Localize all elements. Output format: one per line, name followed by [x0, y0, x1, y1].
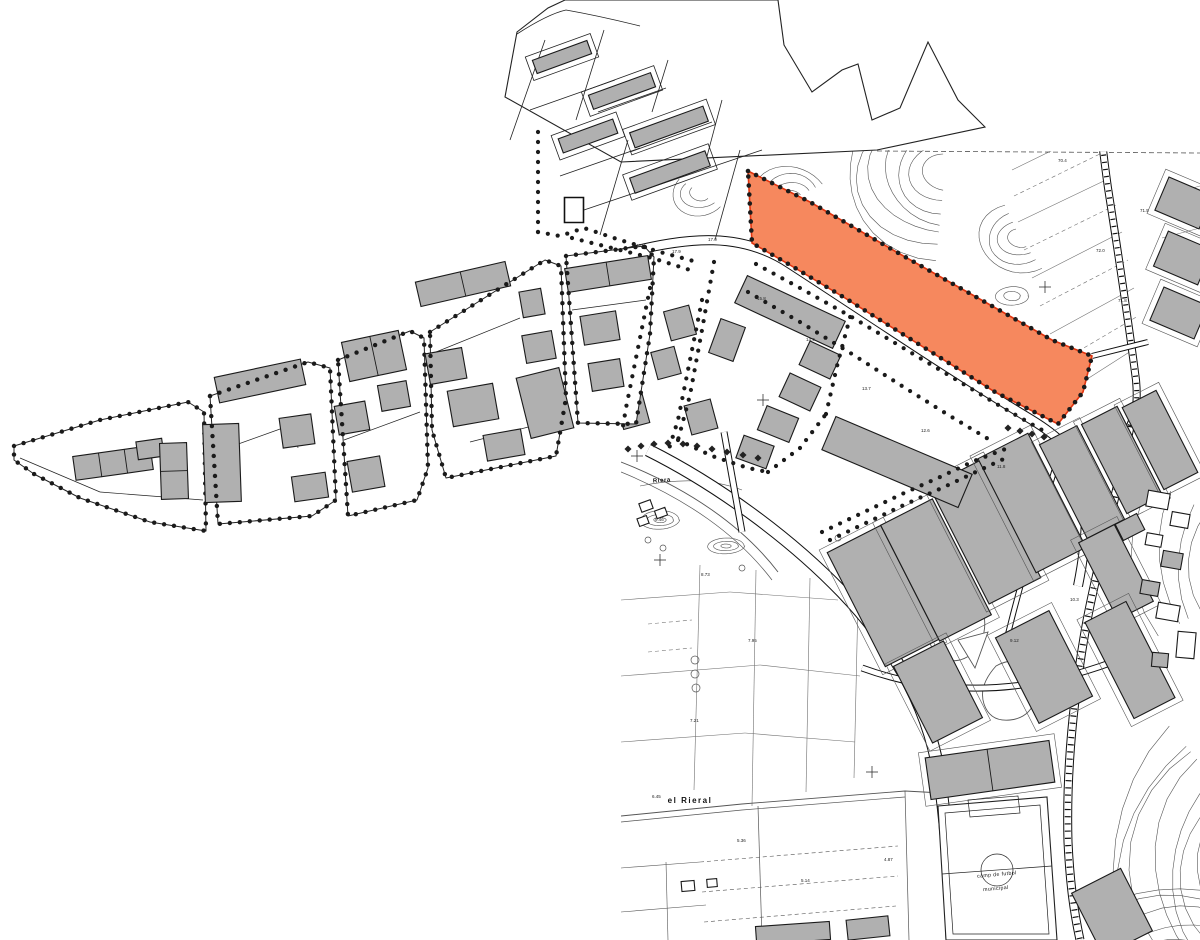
boundary-dot [354, 512, 358, 516]
boundary-dot [676, 416, 680, 420]
boundary-dot [833, 215, 838, 220]
contour-line [1189, 512, 1200, 612]
boundary-dot [943, 277, 948, 282]
boundary-dot [428, 354, 432, 358]
building-footprint [279, 414, 315, 448]
parcel-line [1032, 232, 1122, 278]
parcel-line [1018, 178, 1110, 222]
tree-icon [624, 445, 631, 452]
boundary-dot [928, 491, 932, 495]
parcel-line [1024, 205, 1116, 250]
building-footprint [1156, 602, 1180, 622]
boundary-dot [333, 489, 337, 493]
boundary-dot [521, 271, 525, 275]
boundary-dot [536, 160, 540, 164]
boundary-dot [640, 325, 644, 329]
building-footprint [347, 456, 385, 492]
boundary-dot [670, 253, 674, 257]
boundary-dot [640, 381, 644, 385]
boundary-dot [865, 233, 870, 238]
boundary-dot [970, 387, 974, 391]
boundary-dot [824, 300, 828, 304]
boundary-dot [1008, 398, 1013, 403]
boundary-dot [866, 362, 870, 366]
boundary-dot [554, 450, 558, 454]
boundary-dot [332, 459, 336, 463]
boundary-dot [589, 241, 593, 245]
topo-path [700, 846, 898, 862]
boundary-dot [585, 421, 589, 425]
boundary-dot [748, 201, 753, 206]
boundary-dot [651, 271, 655, 275]
parcel-line [1012, 128, 1098, 170]
boundary-dot [513, 277, 517, 281]
boundary-dot [900, 384, 904, 388]
parcel-line [806, 578, 810, 792]
boundary-dot [423, 373, 427, 377]
boundary-dot [982, 466, 986, 470]
boundary-dot [985, 385, 990, 390]
boundary-dot [962, 382, 966, 386]
boundary-dot [575, 411, 579, 415]
boundary-dot [339, 402, 343, 406]
boundary-dot [114, 508, 118, 512]
boundary-dot [423, 383, 427, 387]
boundary-dot [98, 418, 102, 422]
boundary-dot [21, 441, 25, 445]
boundary-dot [826, 210, 831, 215]
spot-elevation: 9.46 [655, 517, 664, 522]
boundary-dot [297, 515, 301, 519]
boundary-dot [651, 248, 655, 252]
spot-elevation: 11.8 [997, 464, 1006, 469]
boundary-dot [561, 311, 565, 315]
boundary-dot [248, 519, 252, 523]
boundary-dot [698, 308, 702, 312]
boundary-dot [420, 482, 424, 486]
tree-symbol [739, 565, 745, 571]
boundary-dot [613, 247, 617, 251]
contour-line [1008, 229, 1027, 247]
building-footprint [736, 435, 774, 468]
boundary-dot [536, 170, 540, 174]
boundary-dot [564, 261, 568, 265]
tree-symbol [660, 545, 666, 551]
boundary-dot [123, 511, 127, 515]
boundary-dot [845, 325, 849, 329]
boundary-dot [676, 438, 680, 442]
boundary-dot [937, 487, 941, 491]
boundary-dot [137, 410, 141, 414]
boundary-dot [707, 289, 711, 293]
topo-path [666, 862, 668, 940]
boundary-dot [571, 361, 575, 365]
building-footprint [291, 472, 328, 501]
boundary-dot [700, 329, 704, 333]
boundary-dot [496, 287, 500, 291]
boundary-dot [436, 324, 440, 328]
boundary-dot [560, 291, 564, 295]
boundary-dot [562, 341, 566, 345]
boundary-dot [561, 411, 565, 415]
boundary-dot [428, 344, 432, 348]
boundary-dot [872, 237, 877, 242]
boundary-dot [1037, 330, 1042, 335]
boundary-dot [831, 383, 835, 387]
boundary-dot [428, 330, 432, 334]
boundary-dot [650, 291, 654, 295]
topo-path [621, 472, 772, 580]
building-footprint [779, 373, 821, 411]
boundary-dot [958, 286, 963, 291]
boundary-dot [908, 389, 912, 393]
boundary-dot [192, 527, 196, 531]
boundary-dot [443, 472, 447, 476]
boundary-dot [419, 334, 423, 338]
boundary-dot [536, 210, 540, 214]
building-footprint [1155, 177, 1200, 229]
boundary-dot [570, 236, 574, 240]
boundary-dot [929, 479, 933, 483]
boundary-dot [818, 206, 823, 211]
contour-line [714, 541, 739, 550]
boundary-dot [747, 183, 752, 188]
boundary-dot [651, 261, 655, 265]
building-footprint [1161, 550, 1183, 569]
boundary-dot [919, 356, 923, 360]
boundary-dot [965, 462, 969, 466]
boundary-dot [108, 416, 112, 420]
boundary-dot [632, 242, 636, 246]
boundary-dot [778, 185, 783, 190]
boundary-dot [628, 384, 632, 388]
boundary-dot [1088, 359, 1093, 364]
boundary-dot [565, 231, 569, 235]
boundary-dot [953, 377, 957, 381]
block-3 [334, 330, 430, 517]
boundary-dot [1084, 376, 1089, 381]
boundary-dot [793, 266, 798, 271]
boundary-dot [708, 280, 712, 284]
boundary-dot [462, 309, 466, 313]
street-grid-plan [505, 0, 985, 240]
boundary-dot [218, 522, 222, 526]
boundary-dot [429, 384, 433, 388]
boundary-dot [412, 498, 416, 502]
building-footprint [580, 311, 620, 345]
spot-elevation: 71.8 [1118, 298, 1127, 303]
boundary-dot [1021, 321, 1026, 326]
boundary-dot [863, 308, 868, 313]
spot-elevation: 5.14 [801, 878, 810, 883]
survey-cross-icon [866, 766, 878, 778]
boundary-dot [563, 371, 567, 375]
contour-line [1180, 793, 1200, 940]
boundary-dot [901, 491, 905, 495]
boundary-dot [228, 521, 232, 525]
building-footprint [588, 359, 624, 392]
boundary-dot [594, 250, 598, 254]
boundary-dot [255, 377, 259, 381]
boundary-dot [330, 409, 334, 413]
boundary-dot [208, 404, 212, 408]
boundary-dot [1082, 385, 1087, 390]
boundary-dot [876, 331, 880, 335]
boundary-dot [338, 392, 342, 396]
boundary-dot [946, 483, 950, 487]
boundary-dot [346, 512, 350, 516]
boundary-dot [855, 525, 859, 529]
boundary-dot [569, 321, 573, 325]
boundary-dot [747, 192, 752, 197]
boundary-dot [277, 517, 281, 521]
boundary-dot [809, 275, 814, 280]
contour-line [909, 143, 942, 200]
parcel-line [621, 592, 730, 600]
boundary-dot [86, 498, 90, 502]
boundary-dot [790, 452, 794, 456]
boundary-dot [993, 451, 997, 455]
parcel-line [854, 600, 858, 778]
boundary-dot [152, 520, 156, 524]
boundary-dot [849, 224, 854, 229]
boundary-dot [843, 334, 847, 338]
block-4 [415, 259, 573, 479]
boundary-dot [893, 327, 898, 332]
boundary-dot [430, 424, 434, 428]
boundary-dot [566, 291, 570, 295]
boundary-dot [167, 404, 171, 408]
boundary-dot [1024, 406, 1029, 411]
boundary-dot [564, 254, 568, 258]
boundary-dot [636, 345, 640, 349]
boundary-dot [956, 466, 960, 470]
contour-line [690, 188, 708, 201]
boundary-dot [580, 238, 584, 242]
survey-cross-icon [654, 554, 666, 566]
boundary-dot [215, 514, 219, 518]
boundary-dot [204, 521, 208, 525]
boundary-dot [562, 361, 566, 365]
boundary-dot [547, 259, 551, 263]
boundary-dot [916, 342, 921, 347]
boundary-dot [339, 412, 343, 416]
boundary-dot [428, 364, 432, 368]
contour-line [673, 179, 720, 216]
boundary-dot [703, 451, 707, 455]
boundary-dot [660, 251, 664, 255]
boundary-dot [342, 452, 346, 456]
boundary-dot [1002, 447, 1006, 451]
boundary-dot [393, 503, 397, 507]
boundary-dot [1053, 339, 1058, 344]
boundary-dot [574, 391, 578, 395]
boundary-dot [195, 405, 199, 409]
boundary-dot [603, 249, 607, 253]
boundary-dot [985, 436, 989, 440]
contour-line [1004, 291, 1021, 300]
boundary-dot [650, 281, 654, 285]
boundary-dot [824, 412, 828, 416]
boundary-dot [628, 250, 632, 254]
boundary-dot [680, 396, 684, 400]
boundary-dot [766, 470, 770, 474]
boundary-dot [634, 420, 638, 424]
spot-elevation: 9.12 [1010, 638, 1019, 643]
boundary-dot [559, 271, 563, 275]
boundary-dot [162, 522, 166, 526]
boundary-dot [536, 150, 540, 154]
boundary-dot [778, 257, 783, 262]
topo-path [877, 151, 1200, 153]
boundary-dot [76, 495, 80, 499]
boundary-dot [841, 310, 845, 314]
boundary-dot [750, 467, 754, 471]
boundary-dot [615, 421, 619, 425]
topo-path [621, 905, 706, 912]
boundary-dot [626, 394, 630, 398]
boundary-dot [781, 310, 785, 314]
parcel-line [752, 570, 756, 806]
spot-elevation: 6.45 [652, 794, 661, 799]
boundary-dot [990, 304, 995, 309]
boundary-dot [832, 289, 837, 294]
boundary-dot [838, 353, 842, 357]
survey-cross-icon [631, 450, 643, 462]
boundary-dot [925, 400, 929, 404]
boundary-dot [689, 258, 693, 262]
building-footprint [681, 880, 695, 891]
boundary-dot [95, 502, 99, 506]
boundary-dot [642, 371, 646, 375]
boundary-dot [833, 373, 837, 377]
boundary-dot [331, 439, 335, 443]
tree-symbol [692, 684, 700, 692]
boundary-dot [321, 364, 325, 368]
boundary-dot [382, 339, 386, 343]
boundary-dot [246, 381, 250, 385]
boundary-dot [32, 472, 36, 476]
boundary-dot [186, 400, 190, 404]
boundary-dot [536, 190, 540, 194]
boundary-dot [694, 358, 698, 362]
boundary-dot [754, 173, 759, 178]
boundary-dot [429, 394, 433, 398]
boundary-dot [964, 475, 968, 479]
boundary-dot [559, 281, 563, 285]
boundary-dot [328, 369, 332, 373]
boundary-dot [641, 245, 645, 249]
boundary-dot [771, 271, 775, 275]
building-footprint [1151, 652, 1168, 667]
boundary-dot [974, 458, 978, 462]
boundary-dot [824, 285, 829, 290]
boundary-dot [575, 228, 579, 232]
boundary-dot [639, 390, 643, 394]
boundary-dot [528, 459, 532, 463]
boundary-dot [613, 236, 617, 240]
boundary-dot [936, 367, 940, 371]
boundary-dot [41, 435, 45, 439]
boundary-dot [1078, 393, 1083, 398]
boundary-dot [864, 521, 868, 525]
building-footprint [707, 879, 718, 888]
boundary-dot [904, 255, 909, 260]
boundary-dot [489, 467, 493, 471]
boundary-dot [425, 432, 429, 436]
boundary-dot [1086, 367, 1091, 372]
boundary-dot [50, 481, 54, 485]
boundary-dot [816, 280, 821, 285]
boundary-dot [337, 382, 341, 386]
boundary-dot [947, 471, 951, 475]
boundary-dot [201, 528, 205, 532]
boundary-dot [287, 516, 291, 520]
boundary-dot [536, 130, 540, 134]
boundary-dot [623, 246, 627, 250]
building-footprint [684, 399, 718, 435]
building-footprint [1145, 533, 1163, 548]
boundary-dot [428, 334, 432, 338]
boundary-dot [536, 140, 540, 144]
boundary-dot [823, 336, 827, 340]
boundary-dot [324, 504, 328, 508]
topo-path [758, 806, 762, 940]
boundary-dot [213, 474, 217, 478]
boundary-dot [908, 337, 913, 342]
tree-symbol [691, 656, 699, 664]
building-footprint [1140, 580, 1160, 597]
boundary-dot [888, 246, 893, 251]
boundary-dot [942, 410, 946, 414]
boundary-dot [698, 339, 702, 343]
boundary-dot [840, 294, 845, 299]
boundary-dot [340, 422, 344, 426]
boundary-dot [642, 315, 646, 319]
boundary-dot [710, 270, 714, 274]
boundary-dot [88, 421, 92, 425]
boundary-dot [705, 299, 709, 303]
boundary-dot [884, 336, 888, 340]
boundary-dot [807, 291, 811, 295]
boundary-dot [671, 435, 675, 439]
boundary-dot [331, 429, 335, 433]
boundary-dot [157, 406, 161, 410]
boundary-dot [998, 308, 1003, 313]
boundary-dot [686, 267, 690, 271]
boundary-dot [570, 341, 574, 345]
boundary-dot [1073, 400, 1078, 405]
boundary-dot [556, 440, 560, 444]
boundary-dot [1040, 414, 1045, 419]
boundary-dot [648, 255, 652, 259]
boundary-dot [638, 335, 642, 339]
boundary-dot [450, 475, 454, 479]
spot-elevation: 7.95 [748, 638, 757, 643]
boundary-dot [892, 496, 896, 500]
boundary-dot [741, 464, 745, 468]
contour-line [721, 544, 731, 548]
boundary-dot [748, 210, 753, 215]
boundary-dot [832, 341, 836, 345]
boundary-dot [883, 373, 887, 377]
boundary-dot [328, 379, 332, 383]
boundary-dot [212, 454, 216, 458]
boundary-dot [573, 381, 577, 385]
boundary-dot [563, 381, 567, 385]
building-footprint [1170, 512, 1190, 529]
building-footprint [709, 319, 746, 362]
